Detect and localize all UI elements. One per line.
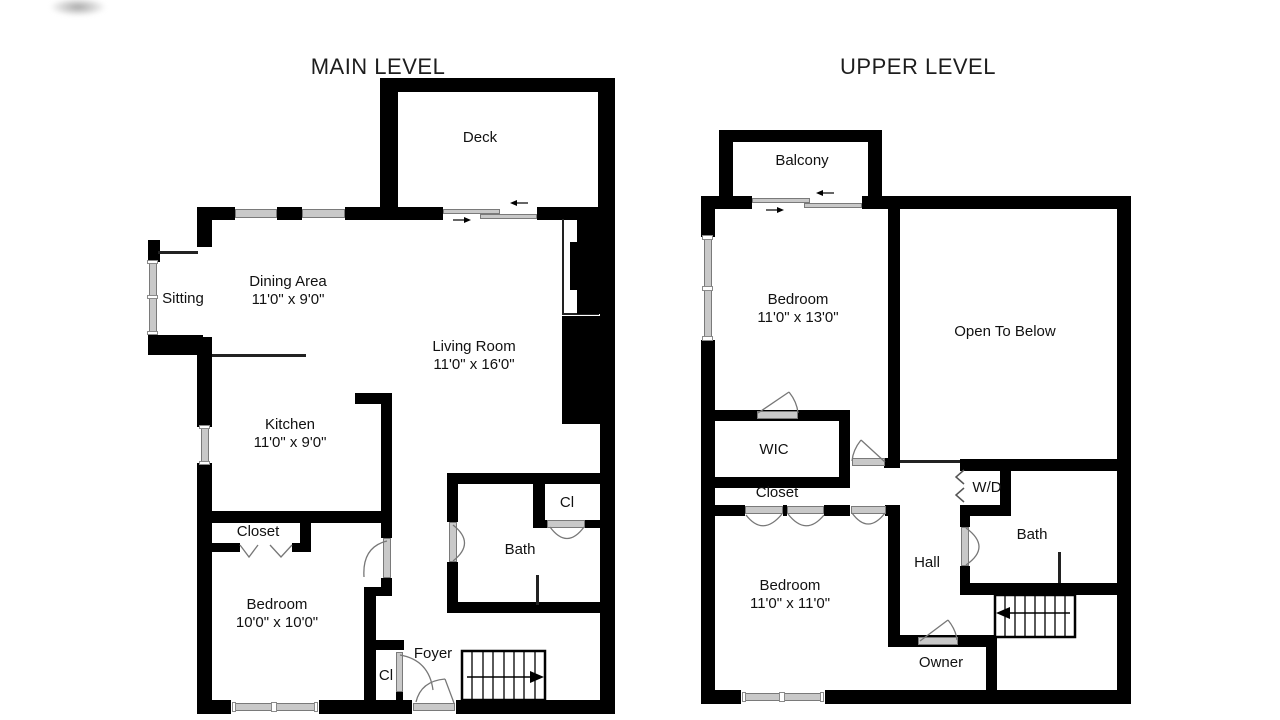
door-leaf-bar (852, 458, 885, 466)
door-leaf-bar (383, 538, 391, 578)
room-label-bath-closet: Cl (560, 494, 574, 512)
wall (364, 640, 404, 650)
room-label-kitchen: Kitchen 11'0" x 9'0" (254, 416, 327, 452)
room-label-balcony: Balcony (775, 152, 828, 170)
wall (824, 505, 850, 516)
stair-direction-arrow (530, 671, 544, 683)
room-dims: 11'0" x 11'0" (750, 595, 830, 613)
upper-level-title: UPPER LEVEL (840, 54, 996, 80)
room-label-bath-upper: Bath (1017, 526, 1048, 544)
wall (598, 78, 615, 208)
window-divider (232, 702, 236, 712)
door-leaf-bar (851, 506, 886, 514)
window-divider (702, 286, 713, 291)
wall (292, 543, 311, 552)
fireplace-box (577, 219, 600, 314)
room-label-hall: Hall (914, 554, 940, 572)
wall (986, 635, 997, 695)
sliding-door-panel (480, 214, 537, 219)
door-leaf-bar (757, 411, 798, 419)
sliding-door-panel (752, 198, 810, 203)
door-leaf-bar (745, 506, 783, 514)
window-divider (147, 295, 158, 299)
door-leaf-bar (961, 527, 969, 566)
door-arc (852, 513, 885, 524)
wall (960, 516, 970, 527)
window-divider (820, 692, 824, 702)
wall (447, 473, 615, 484)
wall (888, 208, 900, 462)
wall (839, 410, 850, 483)
wall (1117, 196, 1131, 704)
bifold-door (240, 545, 258, 557)
fireplace-box (570, 242, 577, 290)
wall (884, 458, 900, 468)
room-label-deck: Deck (463, 129, 497, 147)
room-dims: 11'0" x 13'0" (757, 309, 838, 327)
bifold-door (270, 545, 292, 557)
room-label-closet: Closet (237, 523, 280, 541)
window-divider (199, 461, 210, 465)
room-label-bedroom-main: Bedroom 10'0" x 10'0" (236, 596, 318, 632)
wall (380, 78, 398, 208)
wall (960, 459, 1131, 471)
wall (960, 583, 1131, 595)
room-label-wd: W/D (972, 479, 1001, 497)
room-dims: 11'0" x 9'0" (249, 291, 327, 309)
room-label-closet-upper: Closet (756, 484, 799, 502)
wall (533, 473, 545, 527)
wall (719, 130, 882, 142)
sliding-door-panel (804, 203, 862, 208)
wall (197, 207, 212, 247)
door-arc (746, 514, 782, 526)
window-divider (779, 692, 785, 702)
counter-line (212, 354, 306, 357)
room-label-bedroom-rear: Bedroom 11'0" x 11'0" (750, 577, 830, 613)
room-label-foyer-closet: Cl (379, 667, 393, 685)
window-divider (147, 260, 158, 264)
wall (197, 511, 392, 523)
door-arc (416, 679, 445, 702)
room-label-bath-main: Bath (505, 541, 536, 559)
wall (447, 473, 458, 522)
wall (396, 692, 403, 701)
wall (960, 505, 1011, 516)
door-leaf-bar (547, 520, 585, 528)
wall (148, 335, 203, 355)
room-dims: 11'0" x 16'0" (432, 356, 515, 374)
window-divider (314, 702, 318, 712)
room-label-open-to-below: Open To Below (954, 323, 1055, 341)
open-to-below-edge (900, 460, 960, 463)
wall (380, 78, 614, 92)
watermark-smudge (50, 0, 106, 16)
room-dims: 11'0" x 9'0" (254, 434, 327, 452)
door-leaf-bar (396, 652, 403, 692)
room-label-wic: WIC (759, 441, 788, 459)
room-label-foyer: Foyer (414, 645, 452, 663)
room-label-sitting: Sitting (162, 290, 204, 308)
window-glass (201, 427, 209, 463)
wall (585, 520, 615, 528)
bifold-door (956, 488, 964, 502)
wall (381, 393, 392, 538)
window-divider (742, 692, 746, 702)
window-divider (147, 331, 158, 335)
room-dims: 10'0" x 10'0" (236, 614, 318, 632)
wall (888, 505, 900, 637)
window-divider (199, 425, 210, 429)
toilet-partition (1058, 552, 1061, 583)
window-divider (702, 336, 713, 341)
chimney-block (562, 316, 600, 424)
fireplace-niche-edge (562, 219, 564, 315)
stair-direction-arrow (996, 607, 1010, 619)
door-arc (550, 527, 584, 539)
stairs-upper (995, 595, 1075, 637)
room-label-bedroom-front: Bedroom 11'0" x 13'0" (757, 291, 838, 327)
door-arc (788, 514, 824, 526)
room-label-living: Living Room 11'0" x 16'0" (432, 338, 515, 374)
wall (600, 207, 615, 714)
bifold-door (956, 470, 964, 484)
wall-thin (158, 251, 198, 254)
window-glass (235, 209, 277, 218)
wall (868, 130, 882, 200)
plan-linework (0, 0, 1280, 720)
door-leaf-bar (413, 703, 455, 711)
room-label-owner: Owner (919, 654, 963, 672)
window-glass (302, 209, 345, 218)
window-divider (271, 702, 277, 712)
door-leaf-bar (918, 637, 958, 645)
wall (447, 602, 615, 613)
toilet-partition (536, 575, 539, 605)
main-level-title: MAIN LEVEL (311, 54, 446, 80)
door-leaf-bar (449, 522, 457, 562)
wall (715, 505, 745, 516)
stairs-main (462, 651, 545, 700)
door-leaf-bar (787, 506, 824, 514)
floor-plan-canvas: MAIN LEVEL UPPER LEVEL Deck Sitting Dini… (0, 0, 1280, 720)
window-divider (702, 235, 713, 240)
room-label-dining: Dining Area 11'0" x 9'0" (249, 273, 327, 309)
wall (533, 520, 547, 528)
wall (197, 543, 240, 552)
